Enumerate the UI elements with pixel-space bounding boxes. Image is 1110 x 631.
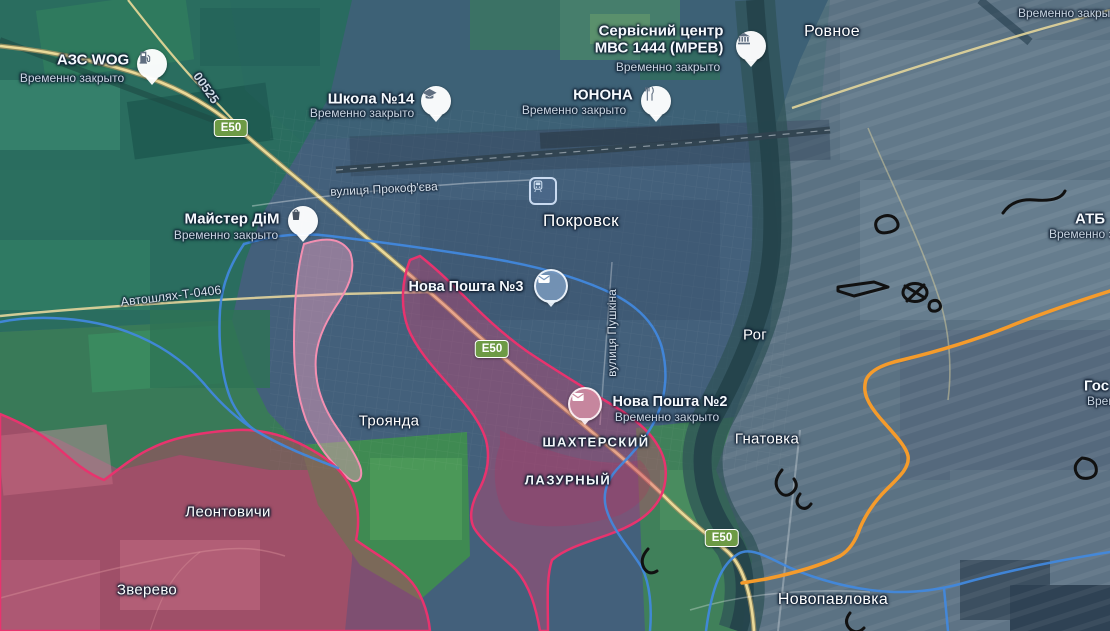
town-label-troianda[interactable]: Троянда xyxy=(359,413,420,430)
town-label-leontovychi[interactable]: Леонтовичи xyxy=(185,504,270,521)
street-label-pushkina: вулиця Пушкіна xyxy=(605,289,619,377)
edge-status-top-right: Временно закрыто xyxy=(1018,6,1110,20)
district-label-lazurnyi: ЛАЗУРНЫЙ xyxy=(525,473,611,488)
azs-wog-pin[interactable] xyxy=(137,49,167,79)
road-badge-e50-center: E50 xyxy=(475,340,509,358)
control-zones-overlay xyxy=(0,0,1110,631)
town-label-rog[interactable]: Рог xyxy=(743,327,767,344)
poi-status-maister-dim: Временно закрыто xyxy=(174,228,278,242)
poi-status-gos: Временно закрыто xyxy=(1087,394,1110,408)
district-label-shakhterskii: ШАХТЕРСКИЙ xyxy=(542,435,649,450)
mvs-service-center-pin[interactable] xyxy=(736,31,766,61)
poi-label-gos[interactable]: Гос xyxy=(1084,378,1109,395)
poi-status-yunona: Временно закрыто xyxy=(522,103,626,117)
shopping-bag-icon xyxy=(288,206,304,222)
town-label-rovnoe[interactable]: Ровное xyxy=(804,23,860,41)
school-pin[interactable] xyxy=(421,86,451,116)
poi-status-azs-wog: Временно закрыто xyxy=(20,71,124,85)
poi-label-yunona[interactable]: ЮНОНА xyxy=(573,87,633,104)
yunona-pin[interactable] xyxy=(641,86,671,116)
government-building-icon xyxy=(736,31,752,47)
assault-zone-main xyxy=(0,414,430,631)
poi-label-mvs-line1[interactable]: Сервісний центр xyxy=(599,23,724,40)
poi-label-mvs-line2[interactable]: МВС 1444 (МРЕВ) xyxy=(595,40,724,57)
nova-poshta-3-pin[interactable] xyxy=(534,269,568,303)
poi-status-nova-poshta-2: Временно закрыто xyxy=(615,410,719,424)
poi-label-shkola14[interactable]: Школа №14 xyxy=(328,91,415,108)
road-badge-e50-south: E50 xyxy=(705,529,739,547)
town-label-novopavlovka[interactable]: Новопавловка xyxy=(778,591,888,609)
maister-dim-pin[interactable] xyxy=(288,206,318,236)
town-label-zverevo[interactable]: Зверево xyxy=(117,582,177,599)
fuel-pump-icon xyxy=(137,49,153,65)
poi-status-shkola14: Временно закрыто xyxy=(310,106,414,120)
poi-status-atb: Временно закрыто xyxy=(1049,227,1110,241)
poi-label-maister-dim[interactable]: Майстер ДіМ xyxy=(185,211,280,228)
poi-label-nova-poshta-2[interactable]: Нова Пошта №2 xyxy=(613,394,728,410)
restaurant-icon xyxy=(641,86,657,102)
poi-label-azs-wog[interactable]: АЗС WOG xyxy=(57,52,129,69)
poi-status-mvs: Временно закрыто xyxy=(616,60,720,74)
town-label-pokrovsk[interactable]: Покровск xyxy=(543,211,619,231)
school-icon xyxy=(421,86,438,103)
town-label-hnatovka[interactable]: Гнатовка xyxy=(735,431,799,448)
nova-poshta-2-pin[interactable] xyxy=(568,387,602,421)
train-station-icon xyxy=(531,179,545,193)
post-envelope-icon xyxy=(570,389,586,405)
post-envelope-icon xyxy=(536,271,552,287)
road-badge-e50-north: E50 xyxy=(214,119,248,137)
poi-label-atb[interactable]: АТБ xyxy=(1075,211,1105,228)
poi-label-nova-poshta-3[interactable]: Нова Пошта №3 xyxy=(409,279,524,295)
map-canvas[interactable]: АЗС WOG Временно закрыто Школа №14 Време… xyxy=(0,0,1110,631)
train-station-pin[interactable] xyxy=(529,177,557,205)
